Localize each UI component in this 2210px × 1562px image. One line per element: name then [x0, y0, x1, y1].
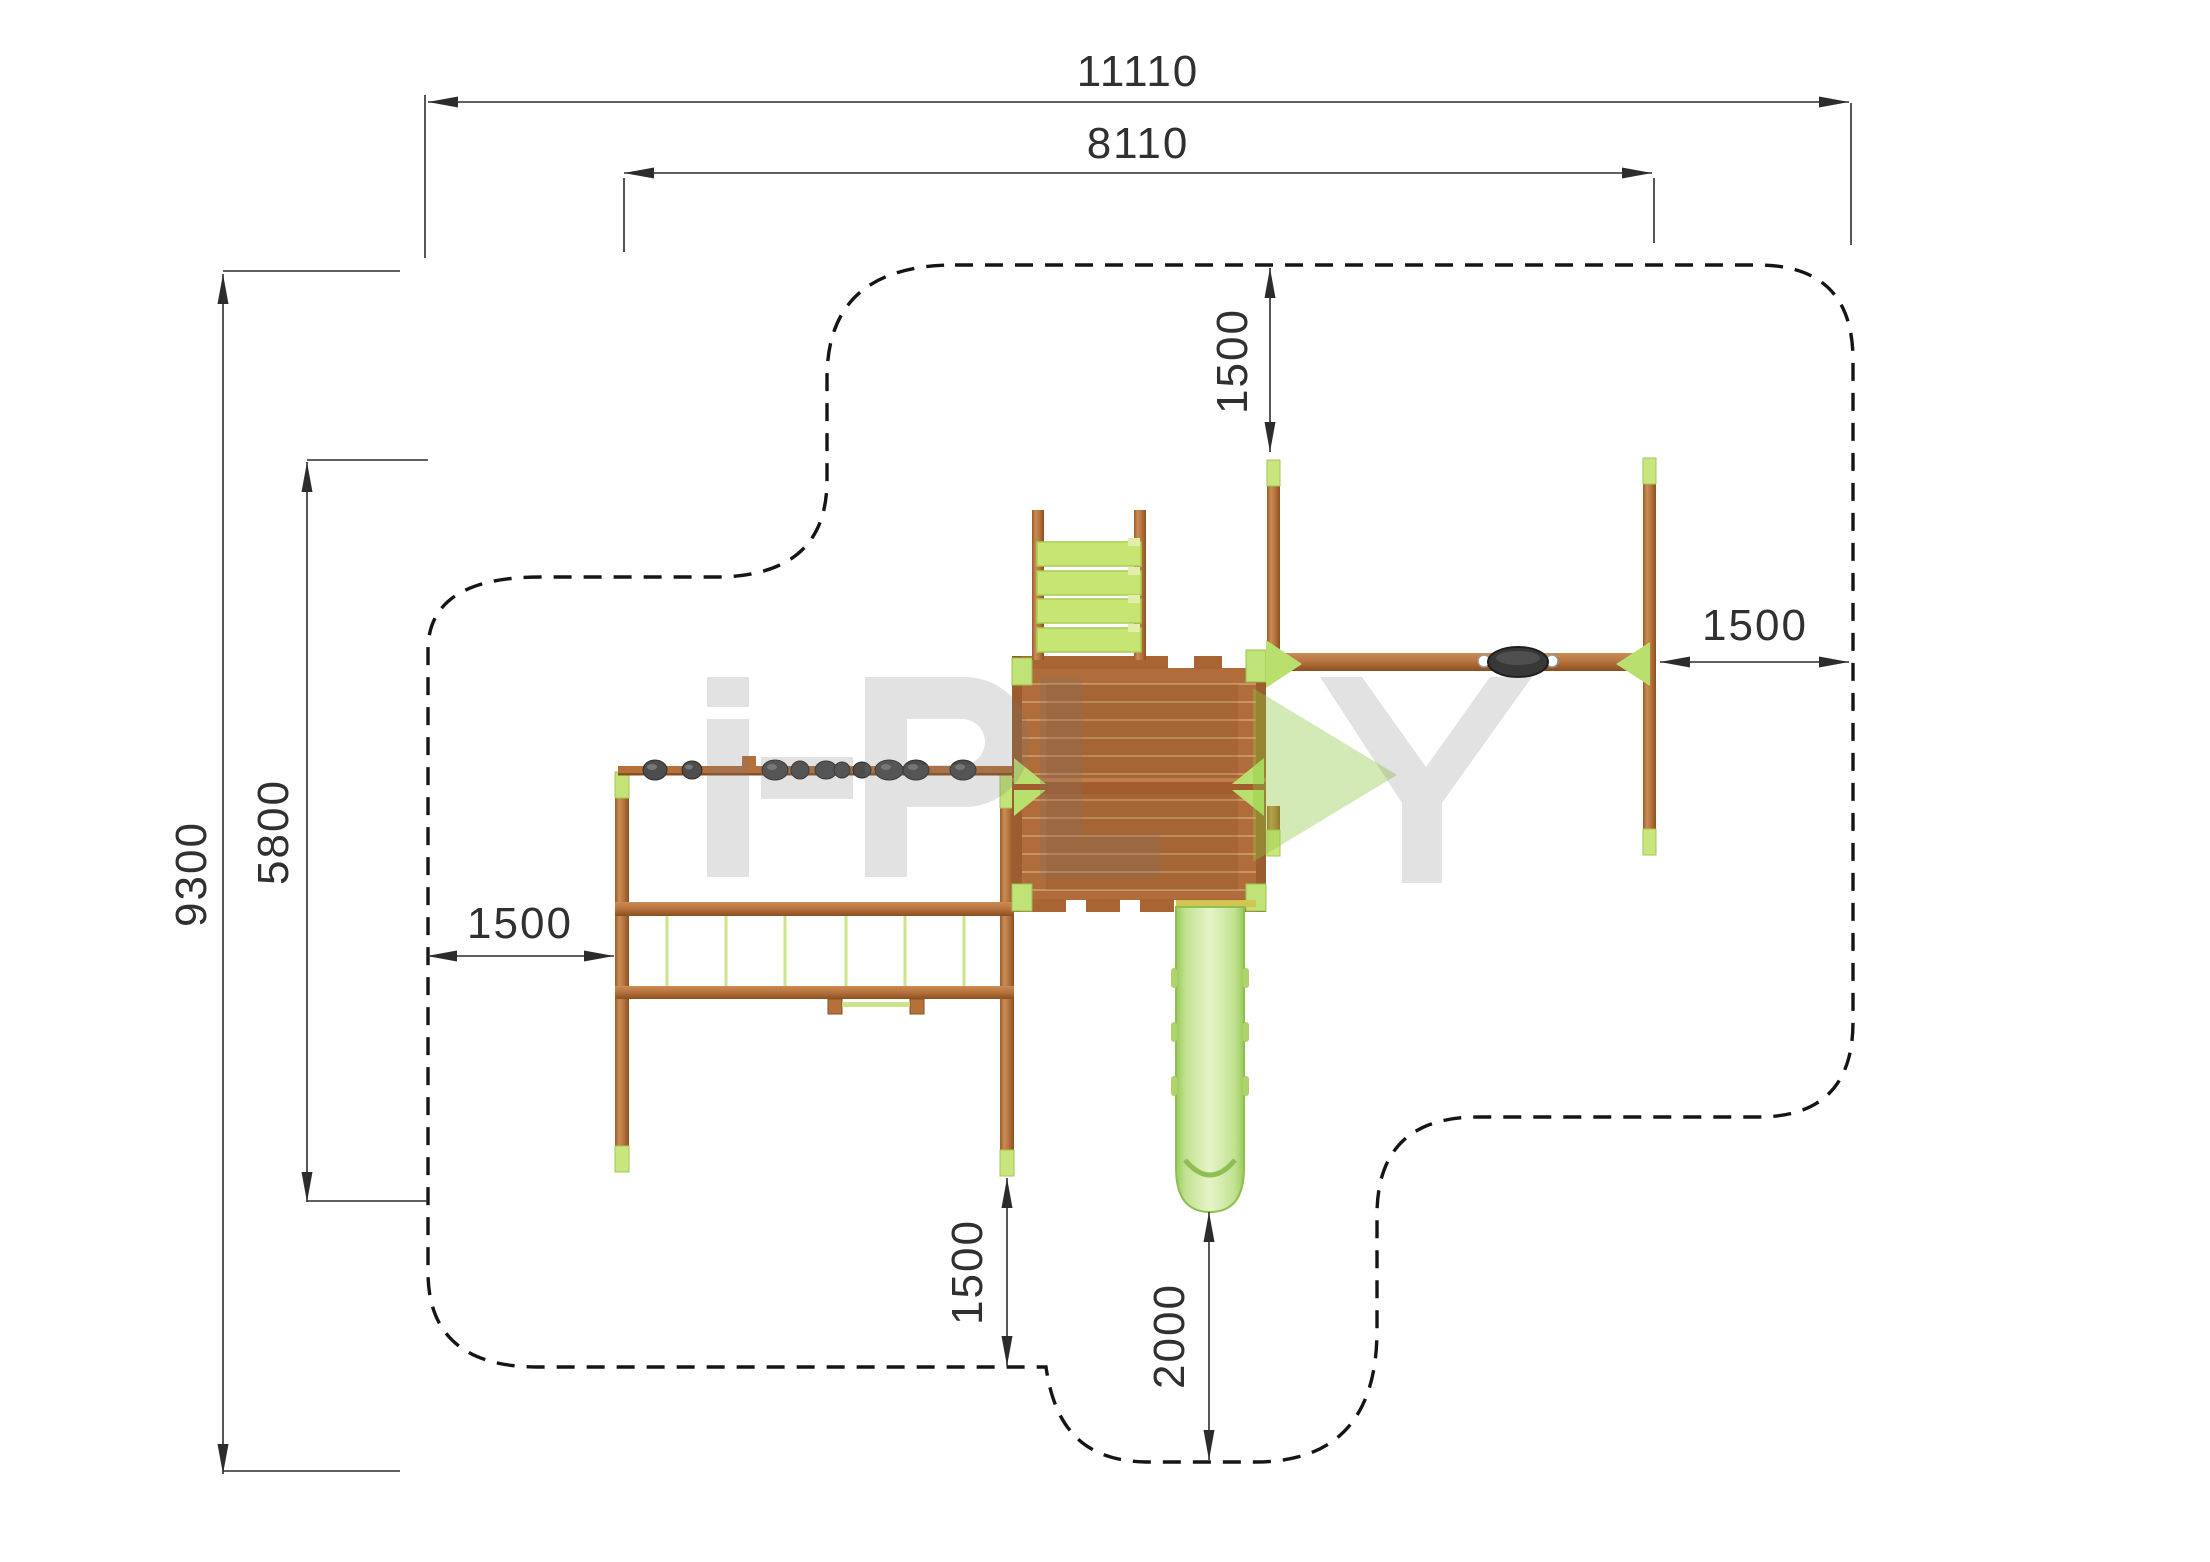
dim-clearance-bottom: 1500 [943, 1219, 992, 1325]
inner-post [1000, 806, 1014, 1150]
balance-rail-unit [615, 772, 1014, 1176]
net-lines [666, 916, 966, 986]
slide-entry-bar [1176, 900, 1256, 907]
ladder-rungs [1037, 538, 1141, 652]
beam-bracket-near [1266, 640, 1302, 688]
left-post-top-cap [615, 772, 629, 798]
swing-beam [1266, 653, 1656, 671]
watermark-letter-i-dot [707, 677, 749, 707]
dim-frame-depth: 5800 [249, 779, 298, 885]
dim-slide-runout: 2000 [1145, 1283, 1194, 1389]
lower-rail [615, 986, 1014, 999]
dim-clearance-top: 1500 [1208, 308, 1257, 414]
slide-body [1176, 907, 1244, 1212]
climbing-ladder [1032, 510, 1146, 660]
left-post [615, 796, 629, 1148]
balance-bench [828, 999, 924, 1014]
slide [1171, 900, 1256, 1212]
upper-rail [615, 902, 1014, 916]
beam-bracket-far [1616, 642, 1650, 686]
dim-clearance-left: 1500 [467, 899, 573, 948]
dim-overall-depth: 9300 [167, 821, 216, 927]
dim-frame-width: 8110 [1087, 119, 1190, 168]
left-post-bottom-cap [615, 1146, 629, 1172]
watermark-letter-i [707, 719, 749, 877]
watermark-hyphen [761, 757, 853, 799]
plan-drawing: 11110 8110 9300 5800 1500 1500 1500 1500… [0, 0, 2210, 1562]
inner-post-bottom-cap [1000, 1150, 1014, 1176]
dim-clearance-right: 1500 [1702, 601, 1808, 650]
dim-overall-width: 11110 [1077, 47, 1200, 96]
swing-near-leg-upper [1267, 486, 1280, 653]
drawing-canvas: 11110 8110 9300 5800 1500 1500 1500 1500… [0, 0, 2210, 1562]
